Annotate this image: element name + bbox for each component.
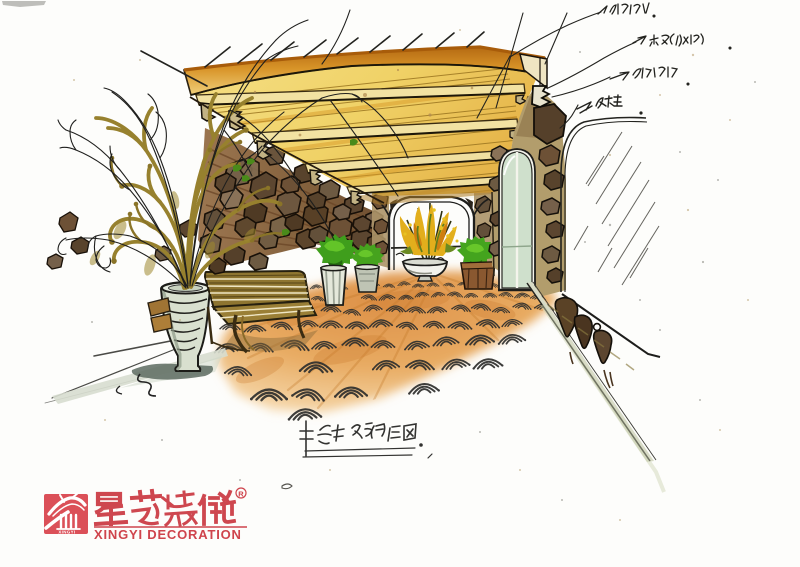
svg-text:XINGYI: XINGYI: [58, 530, 75, 535]
svg-text:XINGYI DECORATION: XINGYI DECORATION: [94, 527, 242, 542]
svg-text:R: R: [238, 490, 244, 499]
